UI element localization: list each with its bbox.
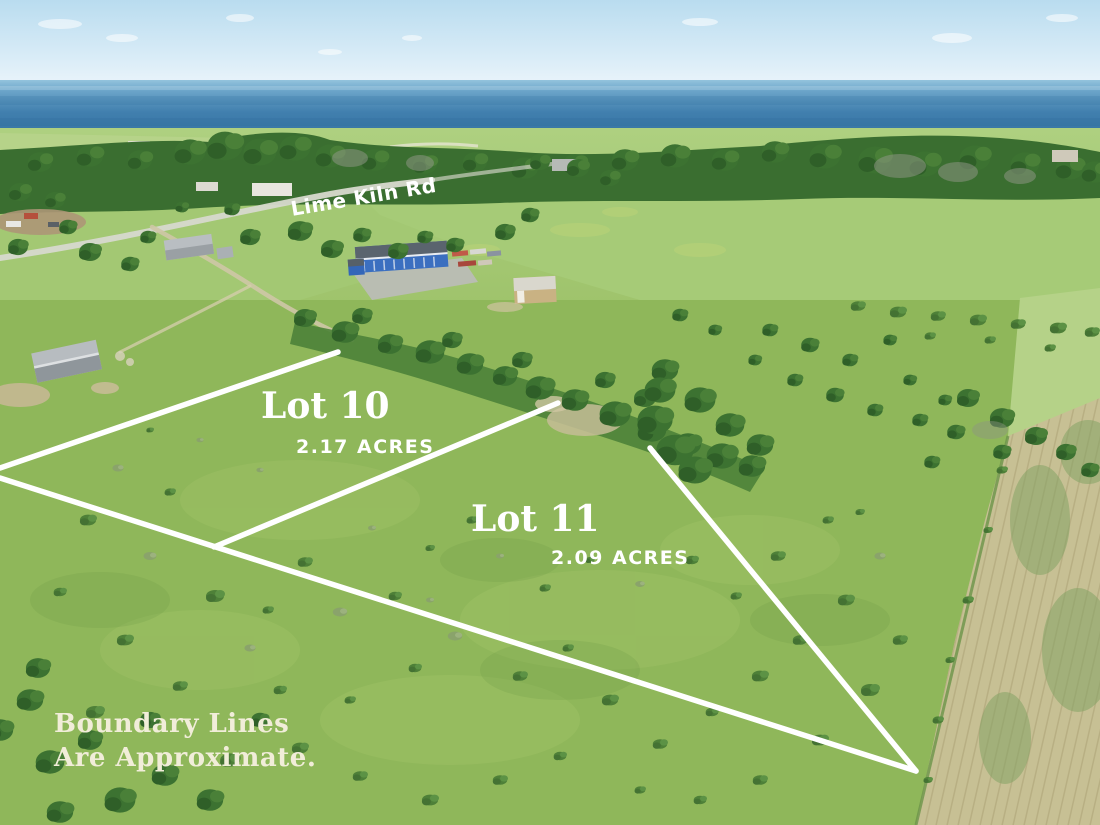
landscape-painting xyxy=(0,0,1100,825)
distant-house xyxy=(1052,150,1078,162)
disclaimer-line2: Are Approximate. xyxy=(54,741,316,775)
lot11-name-label: Lot 11 xyxy=(471,501,600,537)
sky xyxy=(0,0,1100,82)
lot10-name-label: Lot 10 xyxy=(261,388,390,424)
boundary-disclaimer: Boundary Lines Are Approximate. xyxy=(54,707,316,775)
shed-path xyxy=(487,302,523,312)
disclaimer-line1: Boundary Lines xyxy=(54,707,316,741)
lot10-acreage-label: 2.17 ACRES xyxy=(296,438,434,457)
lot11-acreage-label: 2.09 ACRES xyxy=(551,549,689,568)
tan-shed xyxy=(513,276,556,304)
aerial-photo: Lime Kiln Rd Lot 10 2.17 ACRES Lot 11 2.… xyxy=(0,0,1100,825)
